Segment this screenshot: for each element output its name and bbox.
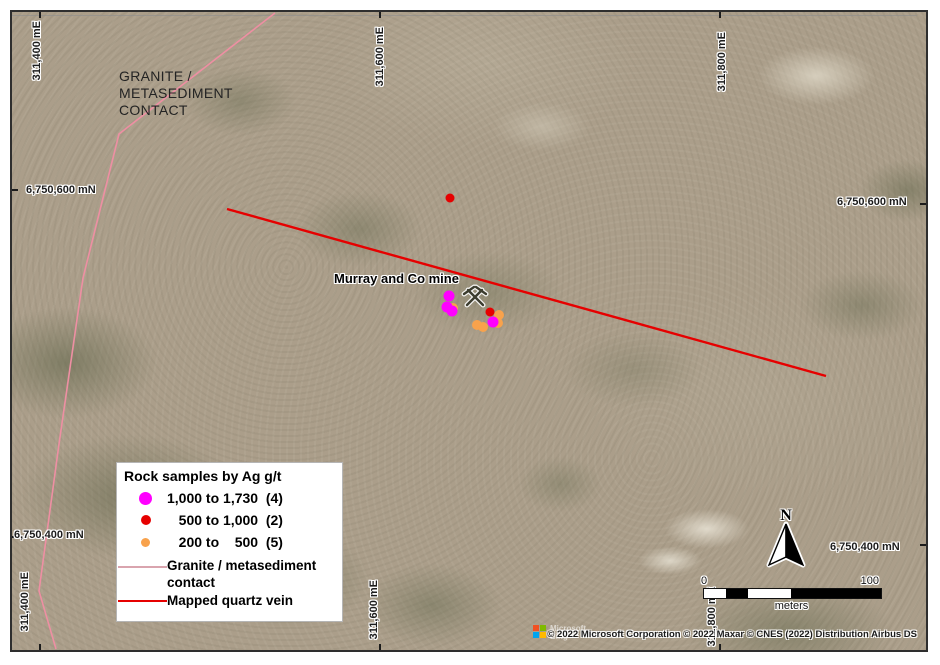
logo-square-red — [533, 625, 539, 631]
logo-square-blue — [533, 632, 539, 638]
scale-bar-graphic — [703, 588, 882, 599]
legend-item-label: Granite / metasediment contact — [167, 557, 336, 591]
annotation-line: CONTACT — [119, 102, 233, 119]
grid-label-easting: 311,400 mE — [31, 21, 43, 80]
grid-tick — [379, 644, 381, 650]
legend-item-label: 200 to 500 (5) — [167, 534, 283, 550]
grid-label-northing: 6,750,400 mN — [14, 529, 84, 541]
scale-bar-labels: 0 100 — [700, 575, 885, 588]
sample-point — [493, 318, 503, 328]
microsoft-logo-icon — [533, 625, 546, 638]
legend-item-label: Mapped quartz vein — [167, 592, 336, 609]
north-arrow: N — [764, 507, 808, 569]
scale-bar: 0 100 meters — [700, 575, 885, 612]
annotation-line: METASEDIMENT — [119, 85, 233, 102]
grid-tick — [39, 644, 41, 650]
sample-point — [444, 291, 455, 302]
legend-title: Rock samples by Ag g/t — [124, 468, 336, 484]
sample-point — [447, 306, 458, 317]
grid-tick — [379, 12, 381, 18]
logo-square-yellow — [540, 632, 546, 638]
legend-item: Granite / metasediment contact — [124, 557, 336, 591]
legend-dot-cell — [124, 538, 167, 547]
grid-tick — [719, 644, 721, 650]
granite-contact-annotation: GRANITE / METASEDIMENT CONTACT — [119, 68, 233, 119]
scale-segment — [704, 589, 726, 598]
sample-point — [448, 303, 458, 313]
orange-dot-icon — [141, 538, 150, 547]
vein-line-icon — [118, 600, 167, 602]
scale-unit-label: meters — [703, 600, 880, 612]
sample-point — [488, 317, 499, 328]
scale-segment — [748, 589, 791, 598]
magenta-dot-icon — [139, 492, 152, 505]
legend-item: Mapped quartz vein — [124, 592, 336, 610]
scale-segment — [791, 589, 881, 598]
north-arrow-label: N — [764, 507, 808, 525]
legend: Rock samples by Ag g/t 1,000 to 1,730 (4… — [116, 462, 343, 622]
legend-item: 1,000 to 1,730 (4) — [124, 487, 336, 509]
grid-tick — [920, 203, 926, 205]
red-dot-icon — [141, 515, 151, 525]
grid-label-easting: 311,400 mE — [19, 572, 31, 631]
copyright-text: © 2022 Microsoft Corporation © 2022 Maxa… — [547, 629, 917, 640]
contact-line-icon — [118, 566, 167, 568]
sample-point — [486, 308, 495, 317]
legend-swatch-cell — [124, 592, 167, 610]
figure-page: 311,400 mE 311,600 mE 311,800 mE 311,400… — [0, 0, 940, 665]
grid-label-northing: 6,750,400 mN — [830, 541, 900, 553]
legend-item-label: 1,000 to 1,730 (4) — [167, 490, 283, 506]
legend-item: 200 to 500 (5) — [124, 531, 336, 553]
legend-item: 500 to 1,000 (2) — [124, 509, 336, 531]
grid-label-easting: 311,600 mE — [368, 580, 380, 639]
grid-label-northing: 6,750,600 mN — [26, 184, 96, 196]
logo-square-green — [540, 625, 546, 631]
legend-dot-cell — [124, 492, 167, 505]
mine-label: Murray and Co mine — [334, 271, 459, 286]
quartz-vein-line — [227, 209, 826, 376]
grid-tick — [39, 12, 41, 18]
scale-start-label: 0 — [701, 575, 707, 587]
sample-point — [446, 194, 455, 203]
legend-item-label: 500 to 1,000 (2) — [167, 512, 283, 528]
annotation-line: GRANITE / — [119, 68, 233, 85]
scale-segment — [726, 589, 748, 598]
grid-tick — [12, 189, 18, 191]
legend-swatch-cell — [124, 557, 167, 575]
sample-point — [472, 320, 482, 330]
grid-label-northing: 6,750,600 mN — [837, 196, 907, 208]
legend-dot-cell — [124, 515, 167, 525]
grid-label-easting: 311,800 mE — [716, 32, 728, 91]
window-edge-line — [12, 15, 917, 16]
grid-tick — [920, 544, 926, 546]
scale-end-label: 100 — [861, 575, 879, 587]
mine-hammers-icon — [461, 284, 489, 310]
map-canvas: 311,400 mE 311,600 mE 311,800 mE 311,400… — [10, 10, 928, 652]
sample-point — [494, 310, 504, 320]
sample-point — [478, 322, 488, 332]
grid-label-easting: 311,600 mE — [374, 27, 386, 86]
grid-tick — [719, 12, 721, 18]
sample-point — [442, 302, 453, 313]
